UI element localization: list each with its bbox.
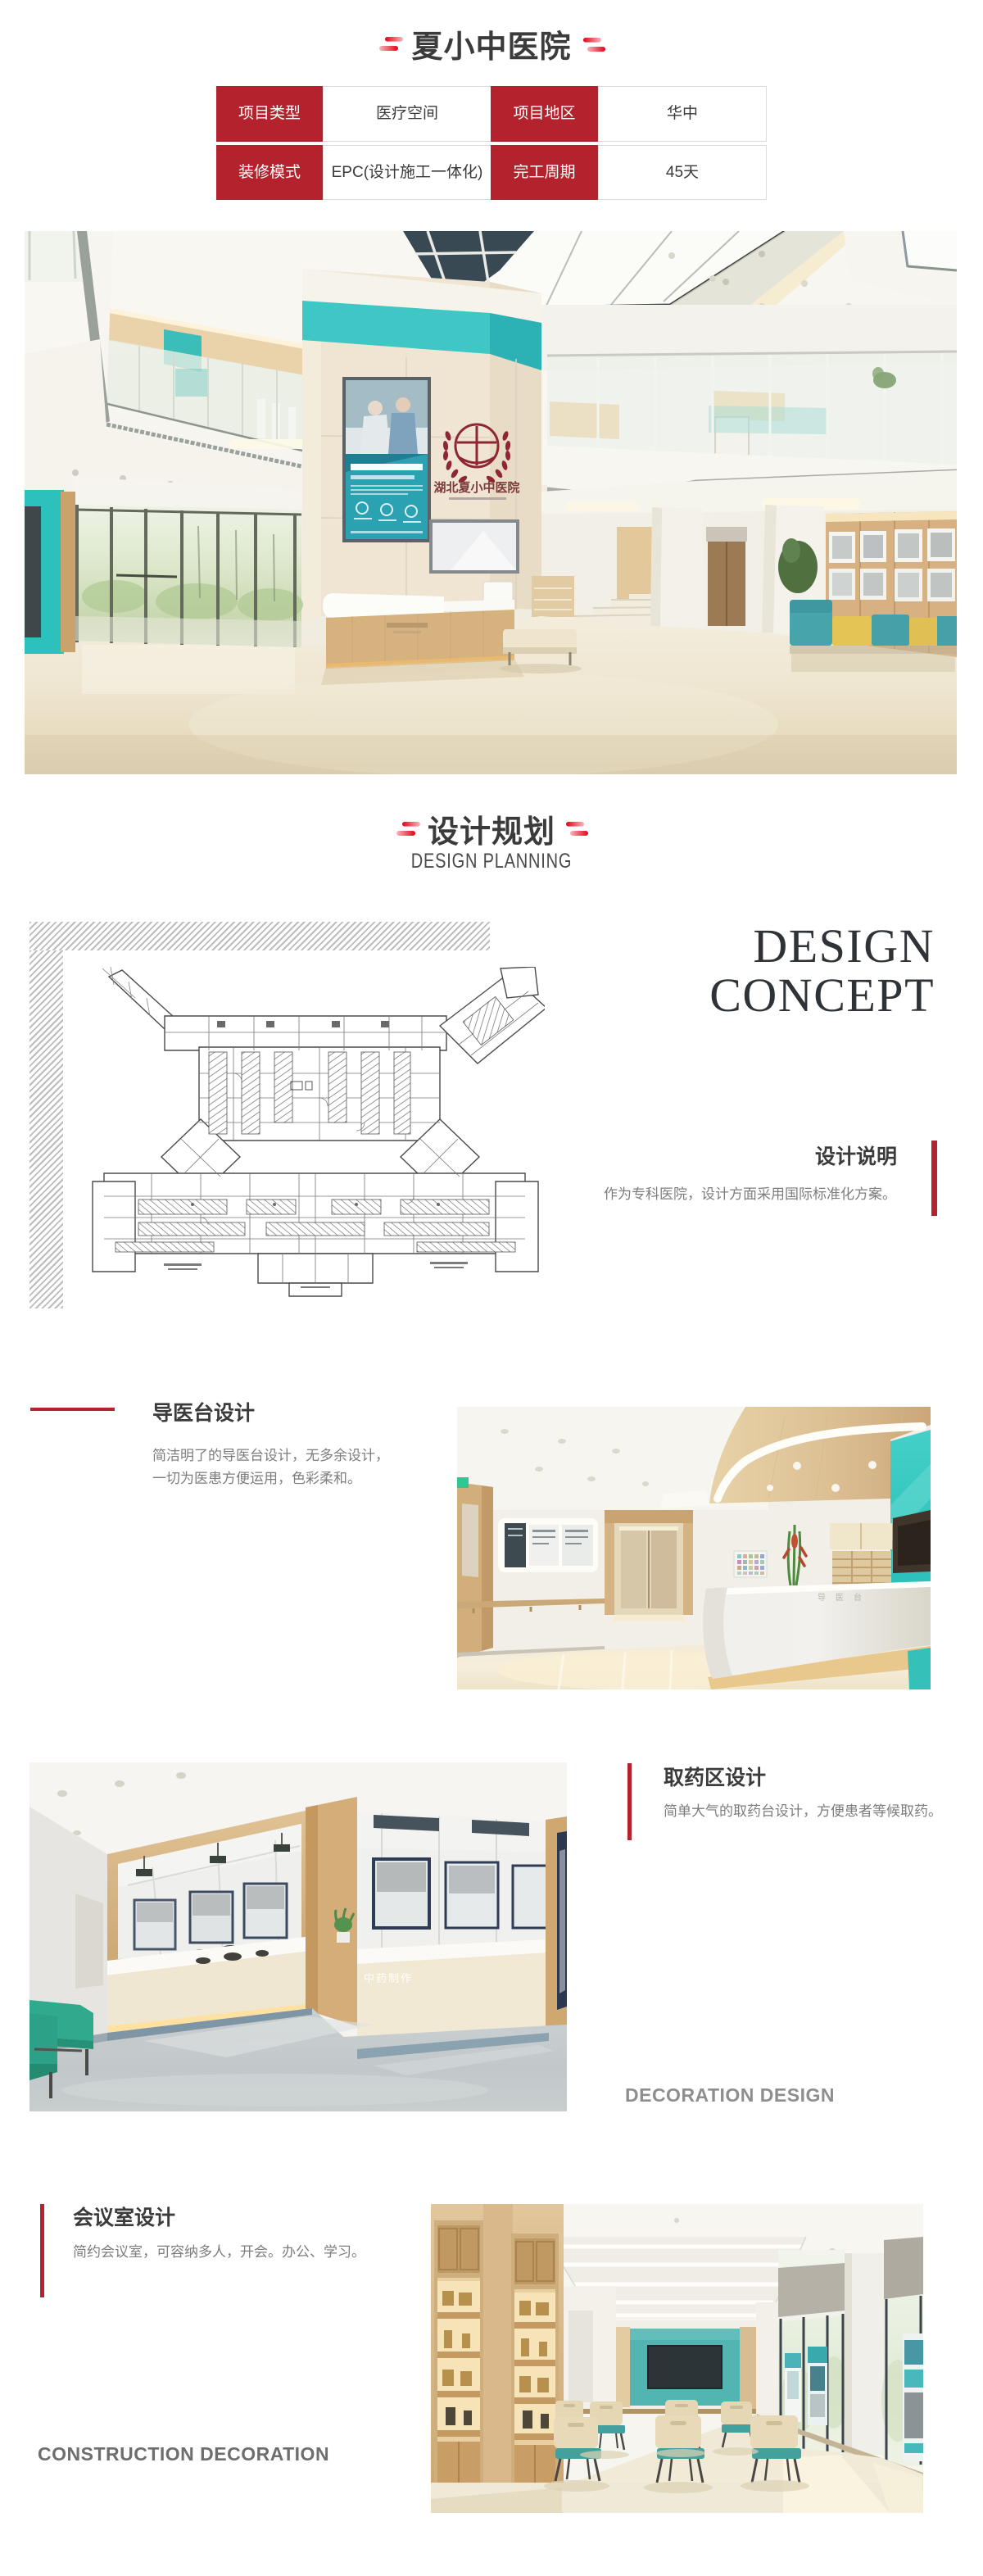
svg-text:中药制作: 中药制作 bbox=[364, 1972, 413, 1984]
svg-text:导医台: 导医台 bbox=[818, 1592, 872, 1603]
svg-text:湖北夏小中医院: 湖北夏小中医院 bbox=[433, 480, 519, 495]
